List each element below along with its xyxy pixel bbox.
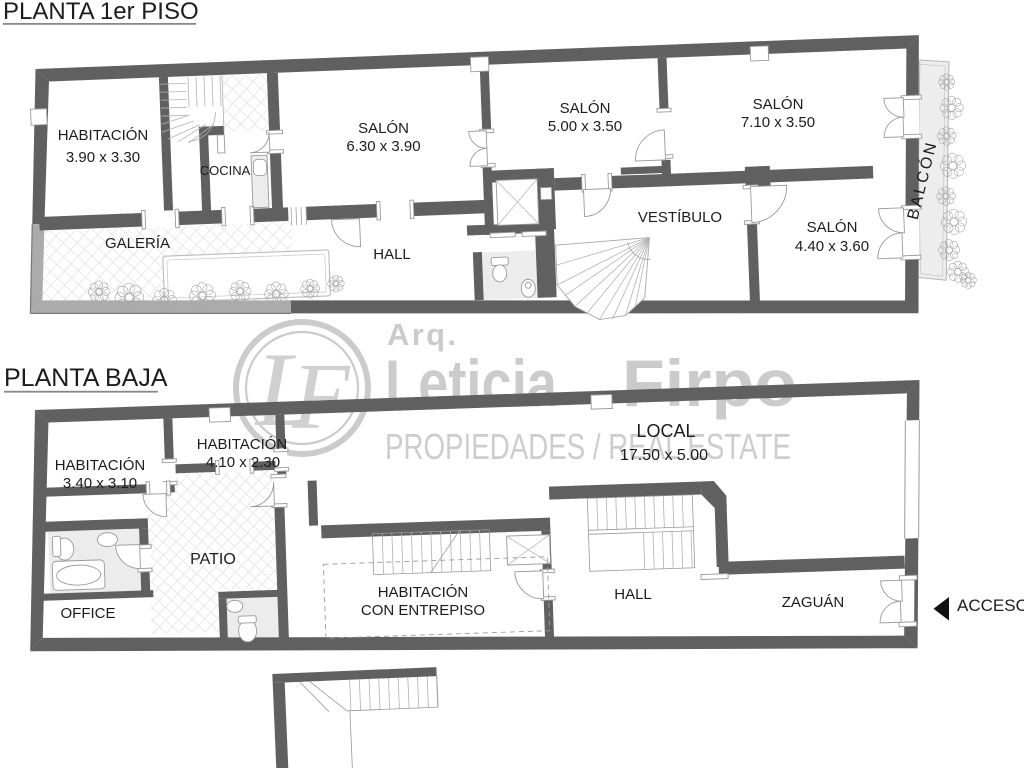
svg-text:HABITACIÓN: HABITACIÓN xyxy=(378,584,469,601)
svg-text:PLANTA BAJA: PLANTA BAJA xyxy=(4,364,168,392)
svg-text:4.10 x 2.30: 4.10 x 2.30 xyxy=(206,454,280,471)
svg-text:HABITACIÓN: HABITACIÓN xyxy=(197,436,288,453)
svg-text:4.40 x 3.60: 4.40 x 3.60 xyxy=(795,238,869,255)
svg-text:LOCAL: LOCAL xyxy=(636,421,695,441)
svg-text:F: F xyxy=(291,345,351,449)
svg-text:7.10 x 3.50: 7.10 x 3.50 xyxy=(741,114,815,131)
svg-text:3.40 x 3.10: 3.40 x 3.10 xyxy=(63,475,137,492)
svg-text:OFFICE: OFFICE xyxy=(61,605,116,622)
svg-text:5.00 x 3.50: 5.00 x 3.50 xyxy=(548,118,622,135)
svg-text:ZAGUÁN: ZAGUÁN xyxy=(782,594,845,611)
svg-text:HALL: HALL xyxy=(373,246,411,263)
svg-text:SALÓN: SALÓN xyxy=(358,120,409,137)
svg-text:COCINA: COCINA xyxy=(200,163,251,178)
svg-text:3.90 x 3.30: 3.90 x 3.30 xyxy=(66,149,140,166)
svg-text:SALÓN: SALÓN xyxy=(560,100,611,117)
svg-text:6.30 x 3.90: 6.30 x 3.90 xyxy=(346,138,420,155)
svg-text:HALL: HALL xyxy=(614,586,652,603)
svg-text:SALÓN: SALÓN xyxy=(753,96,804,113)
svg-text:CON ENTREPISO: CON ENTREPISO xyxy=(361,602,485,619)
svg-text:PLANTA 1er PISO: PLANTA 1er PISO xyxy=(3,0,199,25)
svg-text:ACCESO: ACCESO xyxy=(957,596,1024,615)
svg-text:GALERÍA: GALERÍA xyxy=(105,235,170,252)
svg-text:HABITACIÓN: HABITACIÓN xyxy=(58,127,149,144)
svg-text:PATIO: PATIO xyxy=(190,551,236,568)
svg-text:PROPIEDADES / REAL ESTATE: PROPIEDADES / REAL ESTATE xyxy=(385,426,791,467)
svg-text:SALÓN: SALÓN xyxy=(807,219,858,236)
svg-text:17.50 x 5.00: 17.50 x 5.00 xyxy=(620,447,708,464)
svg-text:HABITACIÓN: HABITACIÓN xyxy=(55,457,146,474)
svg-text:Firpo: Firpo xyxy=(622,346,797,420)
svg-text:VESTÍBULO: VESTÍBULO xyxy=(638,209,722,226)
